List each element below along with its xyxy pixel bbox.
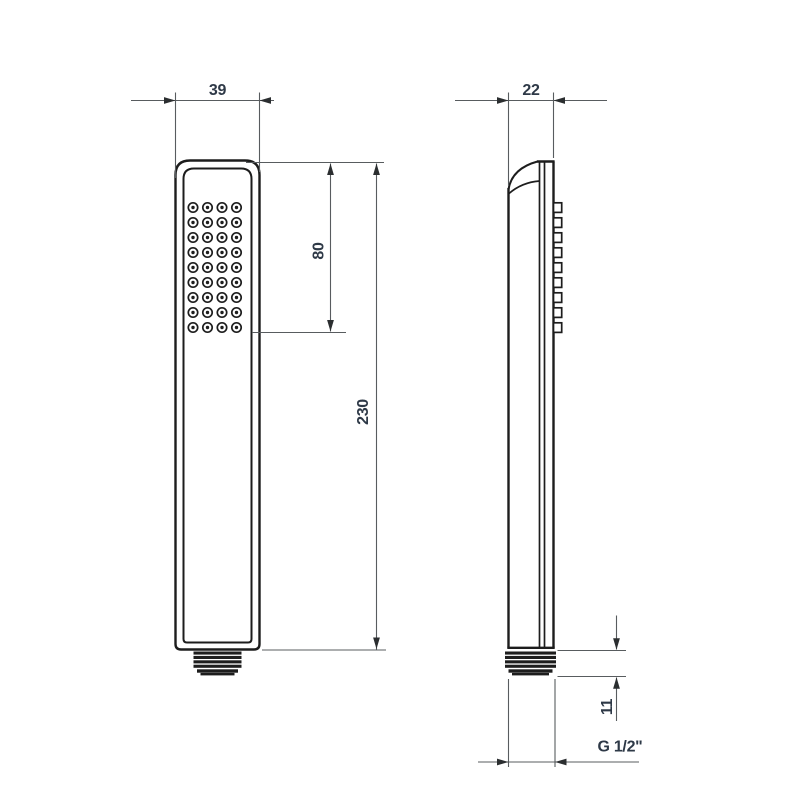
nozzle-dot (191, 326, 194, 329)
nozzle-dot (191, 221, 194, 224)
nozzle-bump (554, 203, 562, 213)
nozzle-dot (220, 281, 223, 284)
nozzle-dot (220, 206, 223, 209)
arrowhead-left-icon (260, 97, 272, 104)
nozzle-bump (554, 278, 562, 288)
arrowhead-up-icon (373, 164, 380, 176)
nozzle-dot (220, 221, 223, 224)
nozzle-dot (235, 326, 238, 329)
nozzle-bump (554, 293, 562, 303)
thread-ridge (194, 660, 242, 663)
nozzle-bump (554, 263, 562, 273)
nozzle-dot (191, 266, 194, 269)
thread-ridge (194, 656, 242, 659)
nozzle-dot (191, 236, 194, 239)
nozzle-bumps-side (554, 203, 562, 333)
nozzle-dot (235, 281, 238, 284)
dimension-value: 39 (209, 82, 227, 99)
nozzle-dot (206, 236, 209, 239)
nozzle-dot (235, 206, 238, 209)
thread-ridge (505, 660, 556, 663)
nozzle-dot (220, 311, 223, 314)
drawing-canvas: 39 22 80 230 11 (0, 0, 800, 800)
side-top-inner-curve (509, 181, 540, 194)
arrowhead-up-icon (327, 164, 334, 176)
nozzle-dot (235, 266, 238, 269)
nozzle-bump (554, 233, 562, 243)
dimension-value: 80 (311, 242, 328, 260)
arrowhead-up-icon (613, 677, 620, 689)
nozzle-bump (554, 218, 562, 228)
nozzle-dot (220, 296, 223, 299)
nozzle-dot (206, 296, 209, 299)
dimension-head-width: 39 (131, 82, 274, 178)
dimension-value: G 1/2" (598, 739, 643, 756)
nozzle-dot (206, 326, 209, 329)
nozzle-dot (191, 281, 194, 284)
nozzle-bump (554, 323, 562, 333)
arrowhead-left-icon (555, 759, 567, 766)
nozzle-dot (206, 266, 209, 269)
dimension-spray-face-length: 80 (252, 164, 346, 333)
thread-ridge (505, 652, 556, 655)
nozzle-dot (206, 281, 209, 284)
inlet-thread-front (194, 652, 242, 676)
nozzle-dot (235, 311, 238, 314)
nozzle-dot (191, 251, 194, 254)
thread-ridge (194, 652, 242, 655)
nozzle-dot (220, 326, 223, 329)
nozzle-dot (220, 251, 223, 254)
arrowhead-right-icon (164, 97, 176, 104)
dimension-value: 22 (522, 82, 540, 99)
nozzle-dot (206, 221, 209, 224)
arrowhead-down-icon (613, 638, 620, 650)
arrowhead-left-icon (554, 97, 566, 104)
arrowhead-right-icon (497, 97, 509, 104)
front-body-outline (176, 161, 260, 650)
front-view (176, 161, 260, 676)
nozzle-dot (235, 221, 238, 224)
dimension-thread-spec: G 1/2" (478, 679, 642, 767)
thread-ridge (505, 665, 556, 668)
nozzle-dot (220, 266, 223, 269)
nozzle-dot (191, 206, 194, 209)
nozzle-dot (235, 296, 238, 299)
thread-ridge-taper (201, 673, 235, 676)
nozzle-dot (235, 251, 238, 254)
arrowhead-down-icon (373, 638, 380, 650)
arrowhead-right-icon (497, 759, 509, 766)
nozzle-dot (235, 236, 238, 239)
dimension-value: 230 (355, 399, 372, 425)
nozzle-dot (206, 251, 209, 254)
dimension-head-depth: 22 (455, 82, 607, 186)
nozzle-bump (554, 248, 562, 258)
thread-ridge-taper (512, 673, 549, 676)
dimension-value: 11 (599, 698, 616, 715)
nozzle-dot (191, 296, 194, 299)
nozzle-dot (191, 311, 194, 314)
dimension-total-length: 230 (262, 164, 386, 651)
side-view (505, 162, 562, 676)
thread-ridge (509, 669, 553, 672)
inlet-thread-side (505, 652, 556, 676)
arrowhead-down-icon (327, 320, 334, 332)
thread-ridge (194, 665, 242, 668)
nozzle-grid (188, 203, 241, 332)
thread-ridge (505, 656, 556, 659)
thread-ridge (197, 669, 238, 672)
nozzle-dot (206, 311, 209, 314)
nozzle-bump (554, 308, 562, 318)
technical-drawing: 39 22 80 230 11 (0, 0, 800, 800)
dimension-thread-length: 11 (558, 616, 627, 722)
nozzle-dot (220, 236, 223, 239)
nozzle-dot (206, 206, 209, 209)
